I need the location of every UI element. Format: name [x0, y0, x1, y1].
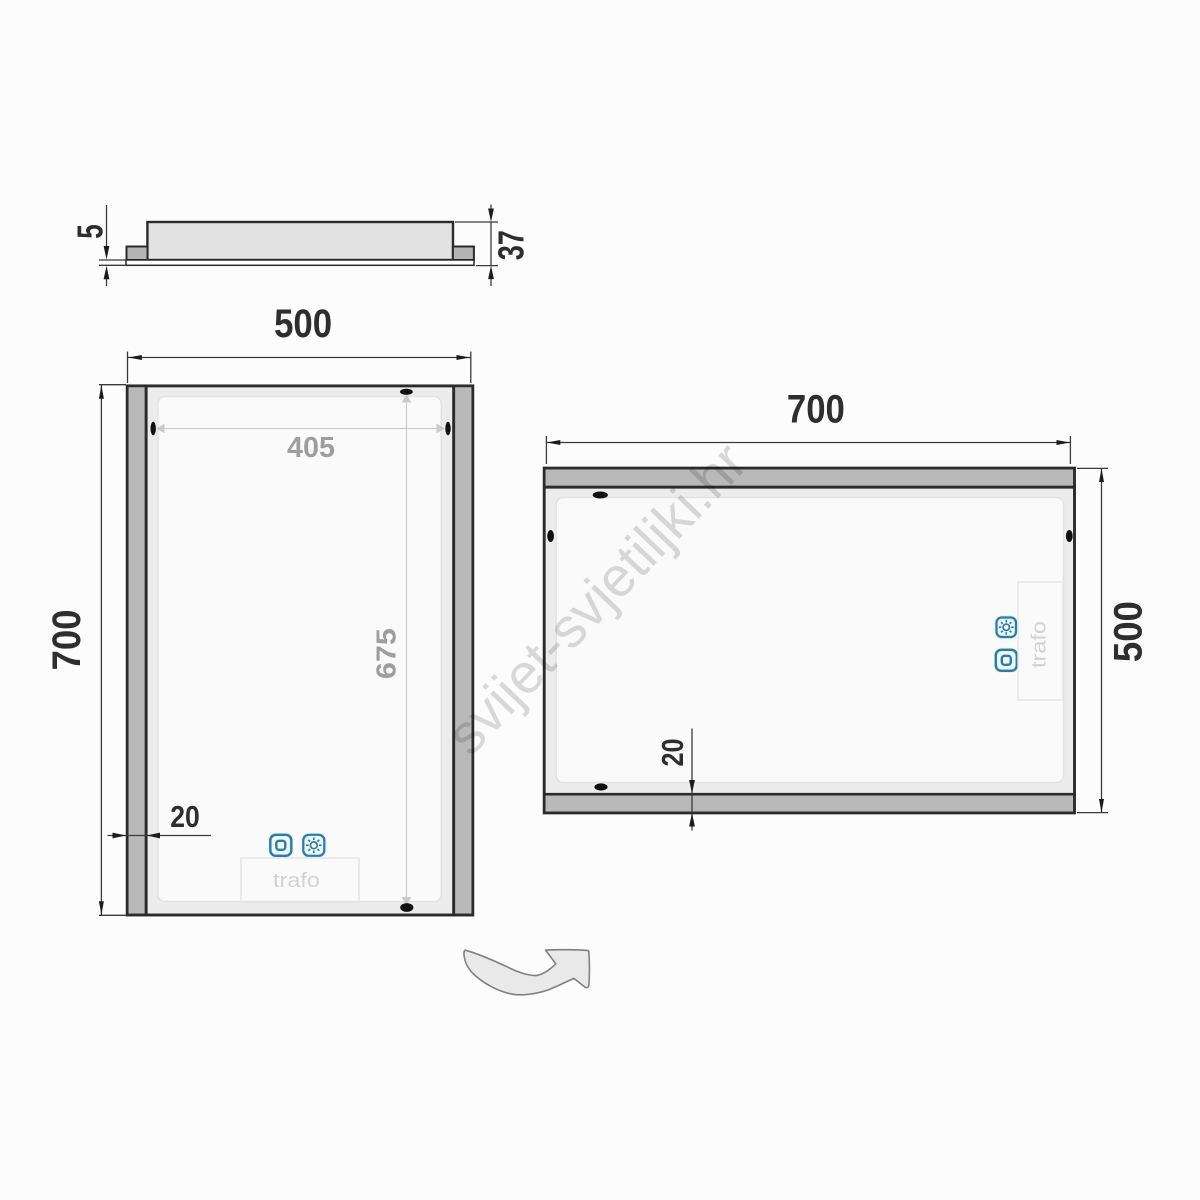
svg-text:675: 675	[370, 628, 401, 679]
svg-text:5: 5	[70, 224, 111, 239]
svg-text:37: 37	[491, 230, 532, 260]
svg-text:20: 20	[170, 799, 200, 834]
svg-text:trafo: trafo	[273, 870, 320, 892]
svg-text:700: 700	[787, 388, 845, 432]
svg-text:20: 20	[655, 739, 690, 767]
svg-text:trafo: trafo	[1029, 621, 1051, 668]
svg-text:700: 700	[45, 610, 89, 671]
svg-text:500: 500	[274, 302, 332, 346]
svg-text:500: 500	[1107, 601, 1151, 662]
svg-text:405: 405	[287, 432, 335, 464]
